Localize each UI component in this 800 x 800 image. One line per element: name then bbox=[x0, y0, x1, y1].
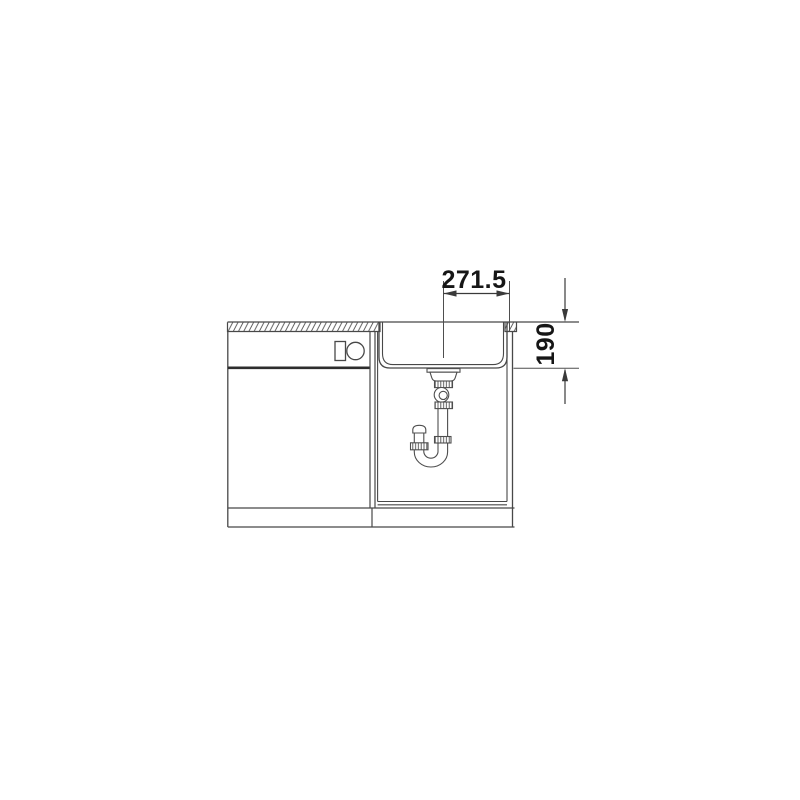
sink-cabinet-floor-lines bbox=[378, 502, 507, 505]
pipe-collar-nut bbox=[435, 437, 452, 444]
drain-siphon-trap bbox=[411, 369, 461, 467]
drain-cup bbox=[430, 372, 457, 381]
arrow-up-icon bbox=[562, 368, 568, 381]
worktop-hatch-left bbox=[228, 322, 381, 331]
drain-nut-lower bbox=[435, 402, 453, 409]
cabinet-divider-lines bbox=[370, 332, 375, 509]
sink-installation-drawing: 271.5 190 bbox=[0, 0, 800, 800]
drain-nut-upper bbox=[435, 381, 453, 388]
dimension-depth-label: 190 bbox=[532, 322, 560, 365]
dimension-width-label: 271.5 bbox=[441, 266, 506, 294]
ball-joint-elbow bbox=[434, 388, 449, 403]
plinth bbox=[228, 508, 515, 527]
left-cabinet bbox=[228, 332, 375, 528]
technical-drawing-page: 271.5 190 bbox=[0, 0, 800, 800]
trap-left-nut bbox=[411, 443, 429, 450]
worktop bbox=[228, 322, 580, 332]
dimension-depth: 190 bbox=[514, 278, 580, 404]
cleanout-cap bbox=[413, 425, 426, 433]
sink-cabinet bbox=[378, 332, 513, 528]
dimension-width: 271.5 bbox=[441, 266, 509, 358]
arrow-down-icon bbox=[562, 309, 568, 322]
control-display-rect bbox=[335, 342, 346, 361]
control-knob-circle bbox=[347, 342, 364, 359]
